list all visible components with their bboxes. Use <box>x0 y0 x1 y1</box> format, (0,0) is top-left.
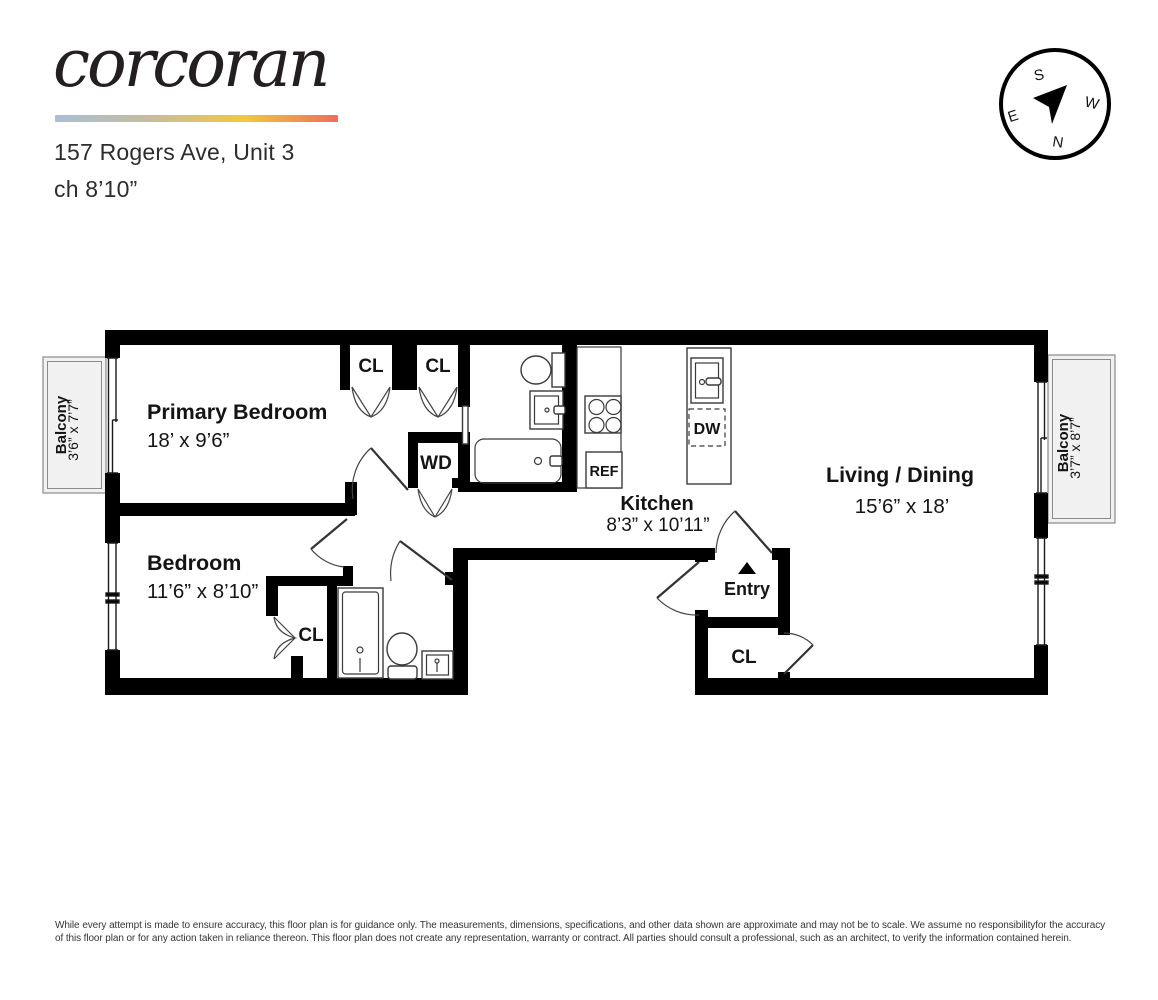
bedroom-label: Bedroom <box>147 551 241 575</box>
washer-dryer-label: WD <box>420 453 452 474</box>
kitchen-label: Kitchen <box>620 493 693 515</box>
bedroom-dims: 11’6” x 8’10” <box>147 580 258 603</box>
living-dining-label: Living / Dining <box>826 463 974 487</box>
disclaimer-text: While every attempt is made to ensure ac… <box>55 920 1105 945</box>
refrigerator-label: REF <box>590 464 619 480</box>
bathtub-icon <box>475 439 561 483</box>
compass-icon: S W N E <box>1001 50 1109 158</box>
bathroom-fixtures <box>475 353 565 483</box>
toilet-icon <box>521 356 551 384</box>
floor-plan-drawing: S W N E Balcony 3’6” x 7’7” Balcony 3’7”… <box>0 0 1158 1000</box>
balcony-left-dims: 3’6” x 7’7” <box>65 399 81 461</box>
dishwasher-label: DW <box>694 421 722 438</box>
toilet2-icon <box>387 633 417 665</box>
living-dining-dims: 15’6” x 18’ <box>855 495 950 518</box>
second-bathroom-fixtures <box>338 588 453 679</box>
toilet-tank <box>552 353 565 387</box>
entry-label: Entry <box>724 579 770 599</box>
balcony-left: Balcony 3’6” x 7’7” <box>43 357 106 493</box>
entry-arrow-icon <box>738 562 756 574</box>
balcony-right: Balcony 3’7” x 8’7” <box>1048 355 1115 523</box>
toilet2-tank <box>388 666 417 679</box>
closet-label-entry: CL <box>731 647 757 668</box>
primary-bedroom-label: Primary Bedroom <box>147 400 327 424</box>
balcony-right-dims: 3’7” x 8’7” <box>1067 417 1083 479</box>
floor-plan-page: corcoran 157 Rogers Ave, Unit 3 ch 8’10”… <box>0 0 1158 1000</box>
kitchen-dims: 8’3” x 10’11” <box>606 515 709 536</box>
closet-label-2: CL <box>425 356 451 377</box>
closet-label-1: CL <box>358 356 384 377</box>
primary-bedroom-dims: 18’ x 9’6” <box>147 429 230 452</box>
closet-label-bedroom: CL <box>298 625 324 646</box>
